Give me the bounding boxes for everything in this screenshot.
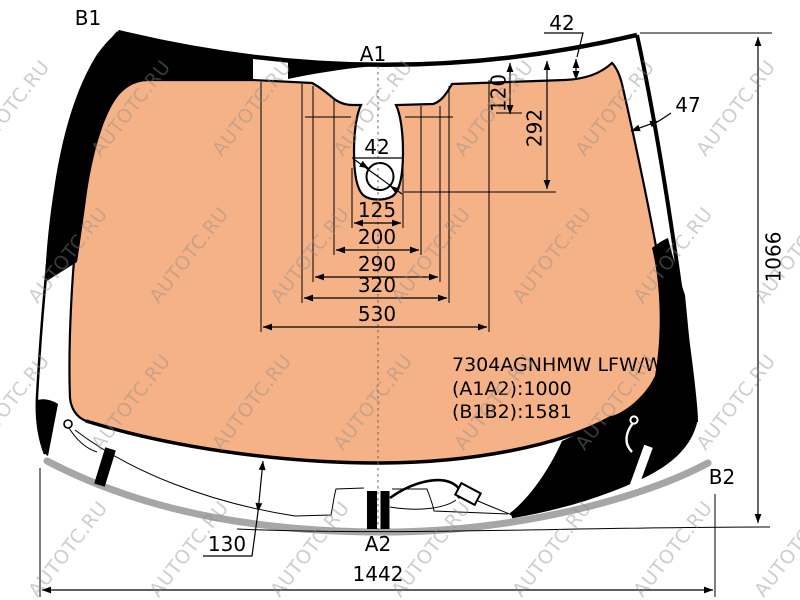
windshield-diagram: 42 125 200 290 320 530 120 292 1066 42 4… [0,0,800,600]
a2-wire-thin [390,500,456,509]
sensor-hole [367,163,394,190]
label-a1: A1 [360,42,386,66]
watermark-text: AUTOTC.RU [24,497,112,600]
watermark-text: AUTOTC.RU [0,56,54,160]
dim-200-text: 200 [358,225,396,249]
dim-530-text: 530 [358,302,396,326]
watermark-text: AUTOTC.RU [266,497,354,600]
leader-47 [659,113,671,121]
dim-42-top-text: 42 [549,11,574,35]
label-b1: B1 [75,6,101,30]
dim-125-text: 125 [358,198,396,222]
dim-292-text: 292 [523,109,547,147]
a2-connector-bar-left [367,491,377,529]
label-b2: B2 [709,465,735,489]
windshield-diagram-page: 42 125 200 290 320 530 120 292 1066 42 4… [0,0,800,600]
dim-42-hole-text: 42 [364,135,389,159]
watermark-text: AUTOTC.RU [629,497,717,600]
dim-47-text: 47 [675,93,700,117]
left-grommet [64,420,72,428]
watermark-text: AUTOTC.RU [692,350,780,454]
watermark-text: AUTOTC.RU [387,497,475,600]
a2-connector-bar-right [381,491,390,529]
frit-band-corner-bl [38,399,58,456]
dim-130-line [258,461,263,512]
dim-42-hole-arrow-b [390,186,396,190]
watermark-text: AUTOTC.RU [692,56,780,160]
label-a2: A2 [365,532,391,556]
